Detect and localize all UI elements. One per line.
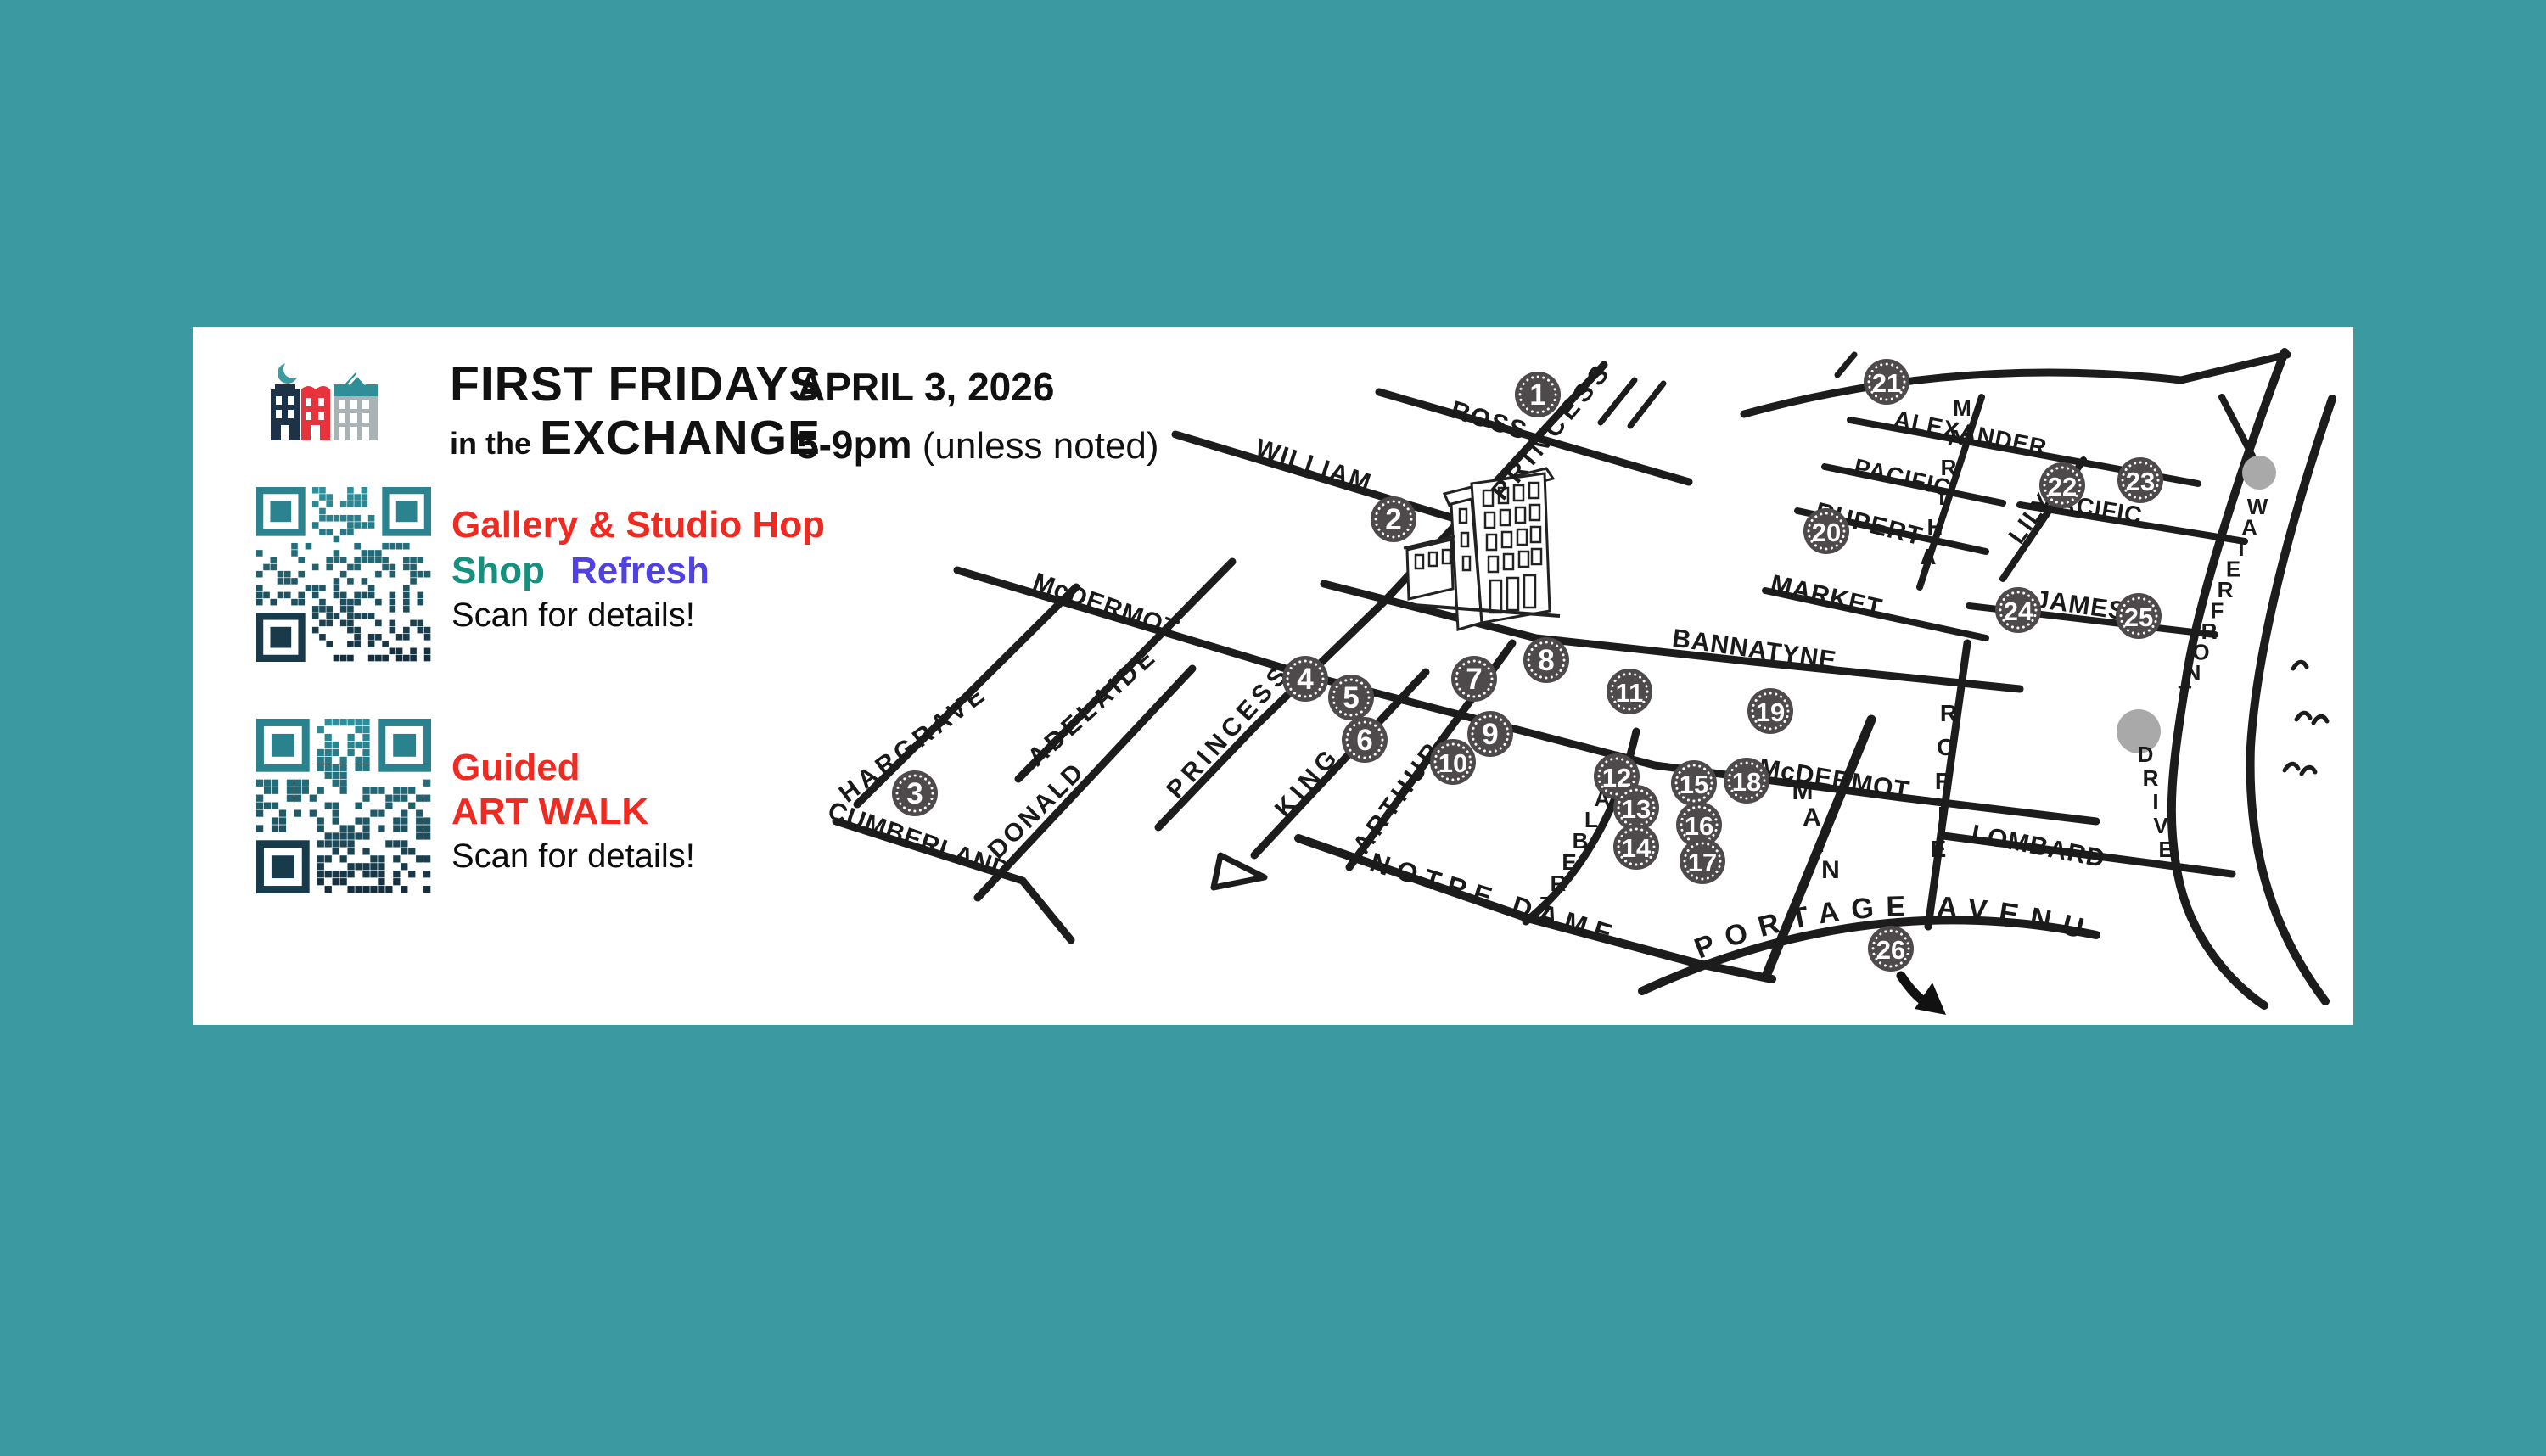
svg-text:V: V (2153, 813, 2168, 838)
svg-text:22: 22 (2048, 472, 2077, 501)
map-marker-10: 10 (1430, 739, 1476, 785)
svg-text:6: 6 (1356, 724, 1372, 757)
map-marker-17: 17 (1680, 838, 1725, 884)
exchange-district-map: ROSSPRINCESSWILLIAMMcDERMOTHARGRAVEADELA… (806, 327, 2376, 1025)
svg-text:A: A (1948, 425, 1964, 451)
svg-text:9: 9 (1482, 718, 1498, 751)
svg-text:M: M (1792, 777, 1814, 805)
map-marker-13: 13 (1613, 785, 1659, 831)
flyer-banner: FIRST FRIDAYS in theEXCHANGE APRIL 3, 20… (193, 327, 2353, 1025)
svg-text:13: 13 (1622, 794, 1651, 824)
svg-text:M: M (1953, 395, 1971, 421)
svg-text:25: 25 (2124, 602, 2153, 632)
svg-text:7: 7 (1466, 663, 1482, 696)
map-marker-4: 4 (1282, 656, 1328, 702)
svg-text:17: 17 (1688, 848, 1717, 877)
svg-text:A: A (1803, 804, 1821, 832)
svg-text:3: 3 (906, 777, 923, 810)
svg-text:T: T (1540, 892, 1554, 917)
refresh-label: Refresh (570, 550, 709, 591)
svg-text:2: 2 (1385, 503, 1401, 536)
gallery-title: Gallery & Studio Hop (451, 507, 825, 544)
map-marker-6: 6 (1342, 717, 1388, 763)
map-marker-26: 26 (1868, 926, 1914, 972)
logo-navy-building (271, 384, 300, 440)
exchange-buildings-logo-icon (267, 359, 412, 444)
street-label-albert: ALBERT (1540, 786, 1611, 917)
gallery-caption: Gallery & Studio Hop ShopRefresh Scan fo… (451, 507, 825, 632)
map-marker-21: 21 (1864, 359, 1909, 405)
svg-text:10: 10 (1438, 748, 1467, 778)
roundabout-dot-1 (2242, 456, 2276, 490)
title-exchange: EXCHANGE (540, 411, 821, 465)
svg-text:4: 4 (1297, 663, 1314, 696)
svg-text:A: A (1921, 544, 1937, 569)
title-prefix: in the (450, 426, 531, 461)
artwalk-caption: Guided ART WALK Scan for details! (451, 749, 695, 873)
street-label-bannatyne: BANNATYNE (1670, 624, 1838, 675)
svg-text:14: 14 (1622, 833, 1652, 863)
svg-text:8: 8 (1538, 644, 1554, 677)
map-marker-25: 25 (2116, 593, 2162, 639)
svg-text:D: D (2138, 742, 2154, 767)
svg-text:19: 19 (1756, 697, 1785, 727)
svg-text:20: 20 (1812, 518, 1841, 547)
title-block: FIRST FRIDAYS in theEXCHANGE (450, 361, 822, 462)
shop-label: Shop (451, 550, 545, 591)
artwalk-title-2: ART WALK (451, 793, 695, 831)
map-marker-9: 9 (1467, 711, 1513, 757)
qr-code-art-walk (256, 719, 431, 893)
map-marker-8: 8 (1523, 637, 1569, 683)
svg-text:26: 26 (1876, 935, 1905, 965)
street-label-king: KING (1270, 742, 1346, 823)
gallery-scan-note: Scan for details! (451, 598, 825, 632)
artwalk-scan-note: Scan for details! (451, 839, 695, 873)
svg-text:R: R (1935, 768, 1952, 794)
street-label-lombard: LOMBARD (1969, 820, 2108, 873)
svg-text:R: R (1941, 455, 1957, 480)
map-marker-20: 20 (1803, 508, 1849, 554)
marker-26-arrow-icon (1901, 976, 1946, 1015)
svg-text:T: T (2179, 681, 2192, 707)
svg-text:1: 1 (1529, 378, 1545, 412)
svg-text:I: I (1938, 802, 1944, 828)
page-title: FIRST FRIDAYS (450, 361, 822, 409)
map-marker-7: 7 (1451, 656, 1497, 702)
map-marker-24: 24 (1995, 587, 2041, 633)
svg-text:R: R (2143, 765, 2159, 791)
map-marker-14: 14 (1613, 824, 1659, 870)
svg-text:5: 5 (1343, 681, 1359, 714)
map-marker-23: 23 (2117, 457, 2163, 503)
svg-text:11: 11 (1616, 678, 1644, 708)
map-marker-11: 11 (1607, 669, 1652, 714)
map-marker-15: 15 (1671, 760, 1717, 806)
artwalk-title-1: Guided (451, 749, 695, 787)
svg-text:R: R (1940, 700, 1957, 726)
map-marker-22: 22 (2039, 462, 2085, 508)
svg-text:I: I (1818, 830, 1825, 858)
svg-text:O: O (1937, 734, 1955, 760)
svg-text:21: 21 (1872, 368, 1901, 398)
map-marker-19: 19 (1747, 688, 1793, 734)
svg-text:T: T (1935, 484, 1949, 510)
svg-text:H: H (1927, 514, 1943, 540)
svg-text:16: 16 (1685, 811, 1713, 841)
map-marker-18: 18 (1724, 758, 1769, 804)
map-marker-5: 5 (1328, 675, 1374, 720)
building-illustration (1402, 468, 1560, 630)
street-label-market: MARKET (1768, 570, 1885, 623)
svg-text:18: 18 (1732, 767, 1761, 797)
map-marker-3: 3 (892, 770, 938, 816)
map-marker-2: 2 (1371, 496, 1416, 542)
svg-text:24: 24 (2004, 596, 2033, 626)
svg-text:15: 15 (1680, 770, 1708, 799)
street-network (836, 352, 2332, 1005)
street-label-william: WILLIAM (1252, 434, 1376, 497)
svg-text:E: E (2158, 837, 2173, 862)
svg-text:I: I (2152, 789, 2158, 815)
logo-teal-building (334, 372, 378, 440)
svg-text:N: N (1821, 856, 1840, 884)
street-label-adelaide: ADELAIDE (1023, 641, 1164, 772)
map-marker-1: 1 (1515, 372, 1561, 417)
svg-text:E: E (1931, 836, 1947, 862)
street-label-donald: DONALD (983, 757, 1091, 865)
page-background: FIRST FRIDAYS in theEXCHANGE APRIL 3, 20… (0, 0, 2546, 1456)
qr-code-gallery-hop (256, 487, 431, 662)
logo-red-building (301, 386, 330, 440)
svg-text:23: 23 (2126, 467, 2155, 496)
